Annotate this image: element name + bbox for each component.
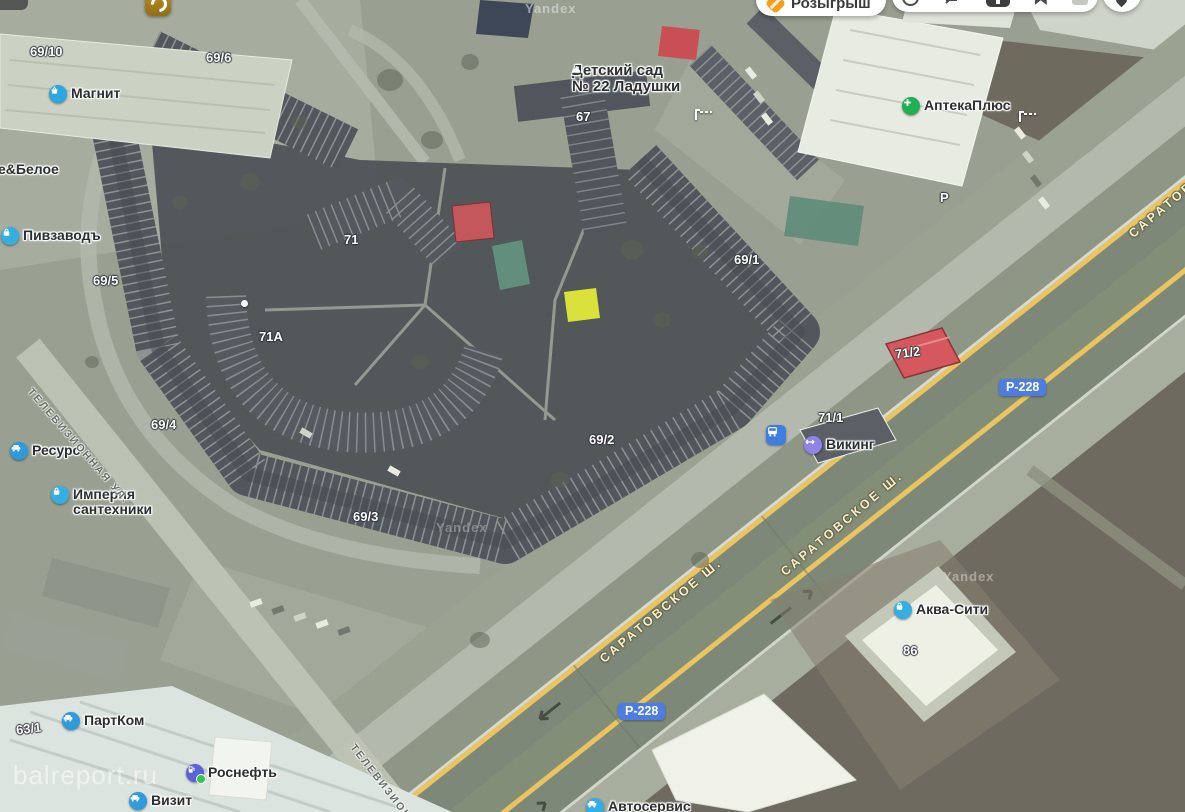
poi-aptekaplus[interactable]: АптекаПлюс: [902, 97, 1011, 115]
poi-kindergarten[interactable]: Детский сад № 22 Ладушки: [568, 62, 680, 95]
poi-vizit[interactable]: Визит: [129, 792, 192, 810]
bag-icon: [1, 227, 19, 245]
bus-stop-icon[interactable]: [766, 425, 786, 445]
yandex-watermark: Yandex: [943, 569, 995, 584]
fuel-icon: [186, 764, 204, 782]
promo-label: Розыгрыш: [791, 0, 871, 12]
site-watermark: balreport.ru: [13, 760, 158, 791]
yandex-watermark: Yandex: [436, 520, 488, 535]
poi-akva-siti[interactable]: Аква-Сити: [894, 601, 988, 619]
car-icon: [129, 792, 147, 810]
poi-krasnoe-beloe[interactable]: е&Белое: [0, 161, 59, 177]
arrows-icon: [804, 436, 822, 454]
building-number: 86: [903, 643, 917, 658]
yandex-watermark: Yandex: [525, 1, 577, 16]
parking-label: Р: [940, 190, 949, 205]
basket-icon: [49, 85, 67, 103]
map-tools-panel[interactable]: [892, 0, 1098, 12]
satellite-map-viewport[interactable]: 69/10 69/6 67 69/5 71 71А 69/1 69/4 69/2…: [0, 0, 1185, 812]
car-icon: [10, 442, 28, 460]
building-number: 69/6: [206, 50, 231, 65]
cross-icon: [902, 97, 920, 115]
layers-icon[interactable]: [1072, 0, 1088, 5]
map-marker-gold[interactable]: [145, 0, 171, 16]
locate-icon[interactable]: [902, 0, 919, 6]
route-badge-r228: Р-228: [999, 379, 1046, 396]
building-number: 71: [344, 232, 358, 247]
building-number: 71/1: [818, 410, 843, 425]
poi-partkom[interactable]: ПартКом: [62, 712, 144, 730]
minor-poi-dot: [241, 300, 248, 307]
panel-corner-button[interactable]: [0, 0, 28, 10]
poi-magnit[interactable]: Магнит: [49, 85, 120, 103]
building-number: 63/1: [15, 720, 42, 738]
bookmarks-icon[interactable]: [1035, 0, 1047, 5]
poi-rosneft[interactable]: Роснефть: [186, 764, 277, 782]
building-number: 69/1: [734, 252, 759, 267]
car-icon: [586, 798, 604, 812]
building-number: 69/5: [93, 273, 118, 288]
satellite-imagery: [0, 0, 1185, 812]
routes-icon[interactable]: [944, 0, 960, 6]
bag-icon: [51, 486, 69, 504]
bag-icon: [894, 601, 912, 619]
building-number: 69/3: [353, 509, 378, 524]
poi-pivzavod[interactable]: Пивзаводъ: [1, 227, 101, 245]
promo-chip[interactable]: Розыгрыш: [756, 0, 886, 16]
gift-icon: [765, 0, 786, 14]
building-number: 67: [576, 109, 590, 124]
pin-icon: [1114, 0, 1130, 7]
poi-avtoservis[interactable]: Автосервис: [586, 798, 691, 812]
building-number: 69/4: [151, 417, 176, 432]
building-number: 71А: [259, 329, 283, 344]
building-number: 69/2: [589, 432, 614, 447]
poi-viking[interactable]: Викинг: [804, 436, 875, 454]
panoramas-icon[interactable]: [986, 0, 1010, 7]
building-number: 69/10: [30, 44, 63, 59]
car-icon: [62, 712, 80, 730]
poi-imperia-santehniki[interactable]: Империя сантехники: [51, 486, 152, 517]
route-badge-r228: Р-228: [618, 703, 665, 720]
